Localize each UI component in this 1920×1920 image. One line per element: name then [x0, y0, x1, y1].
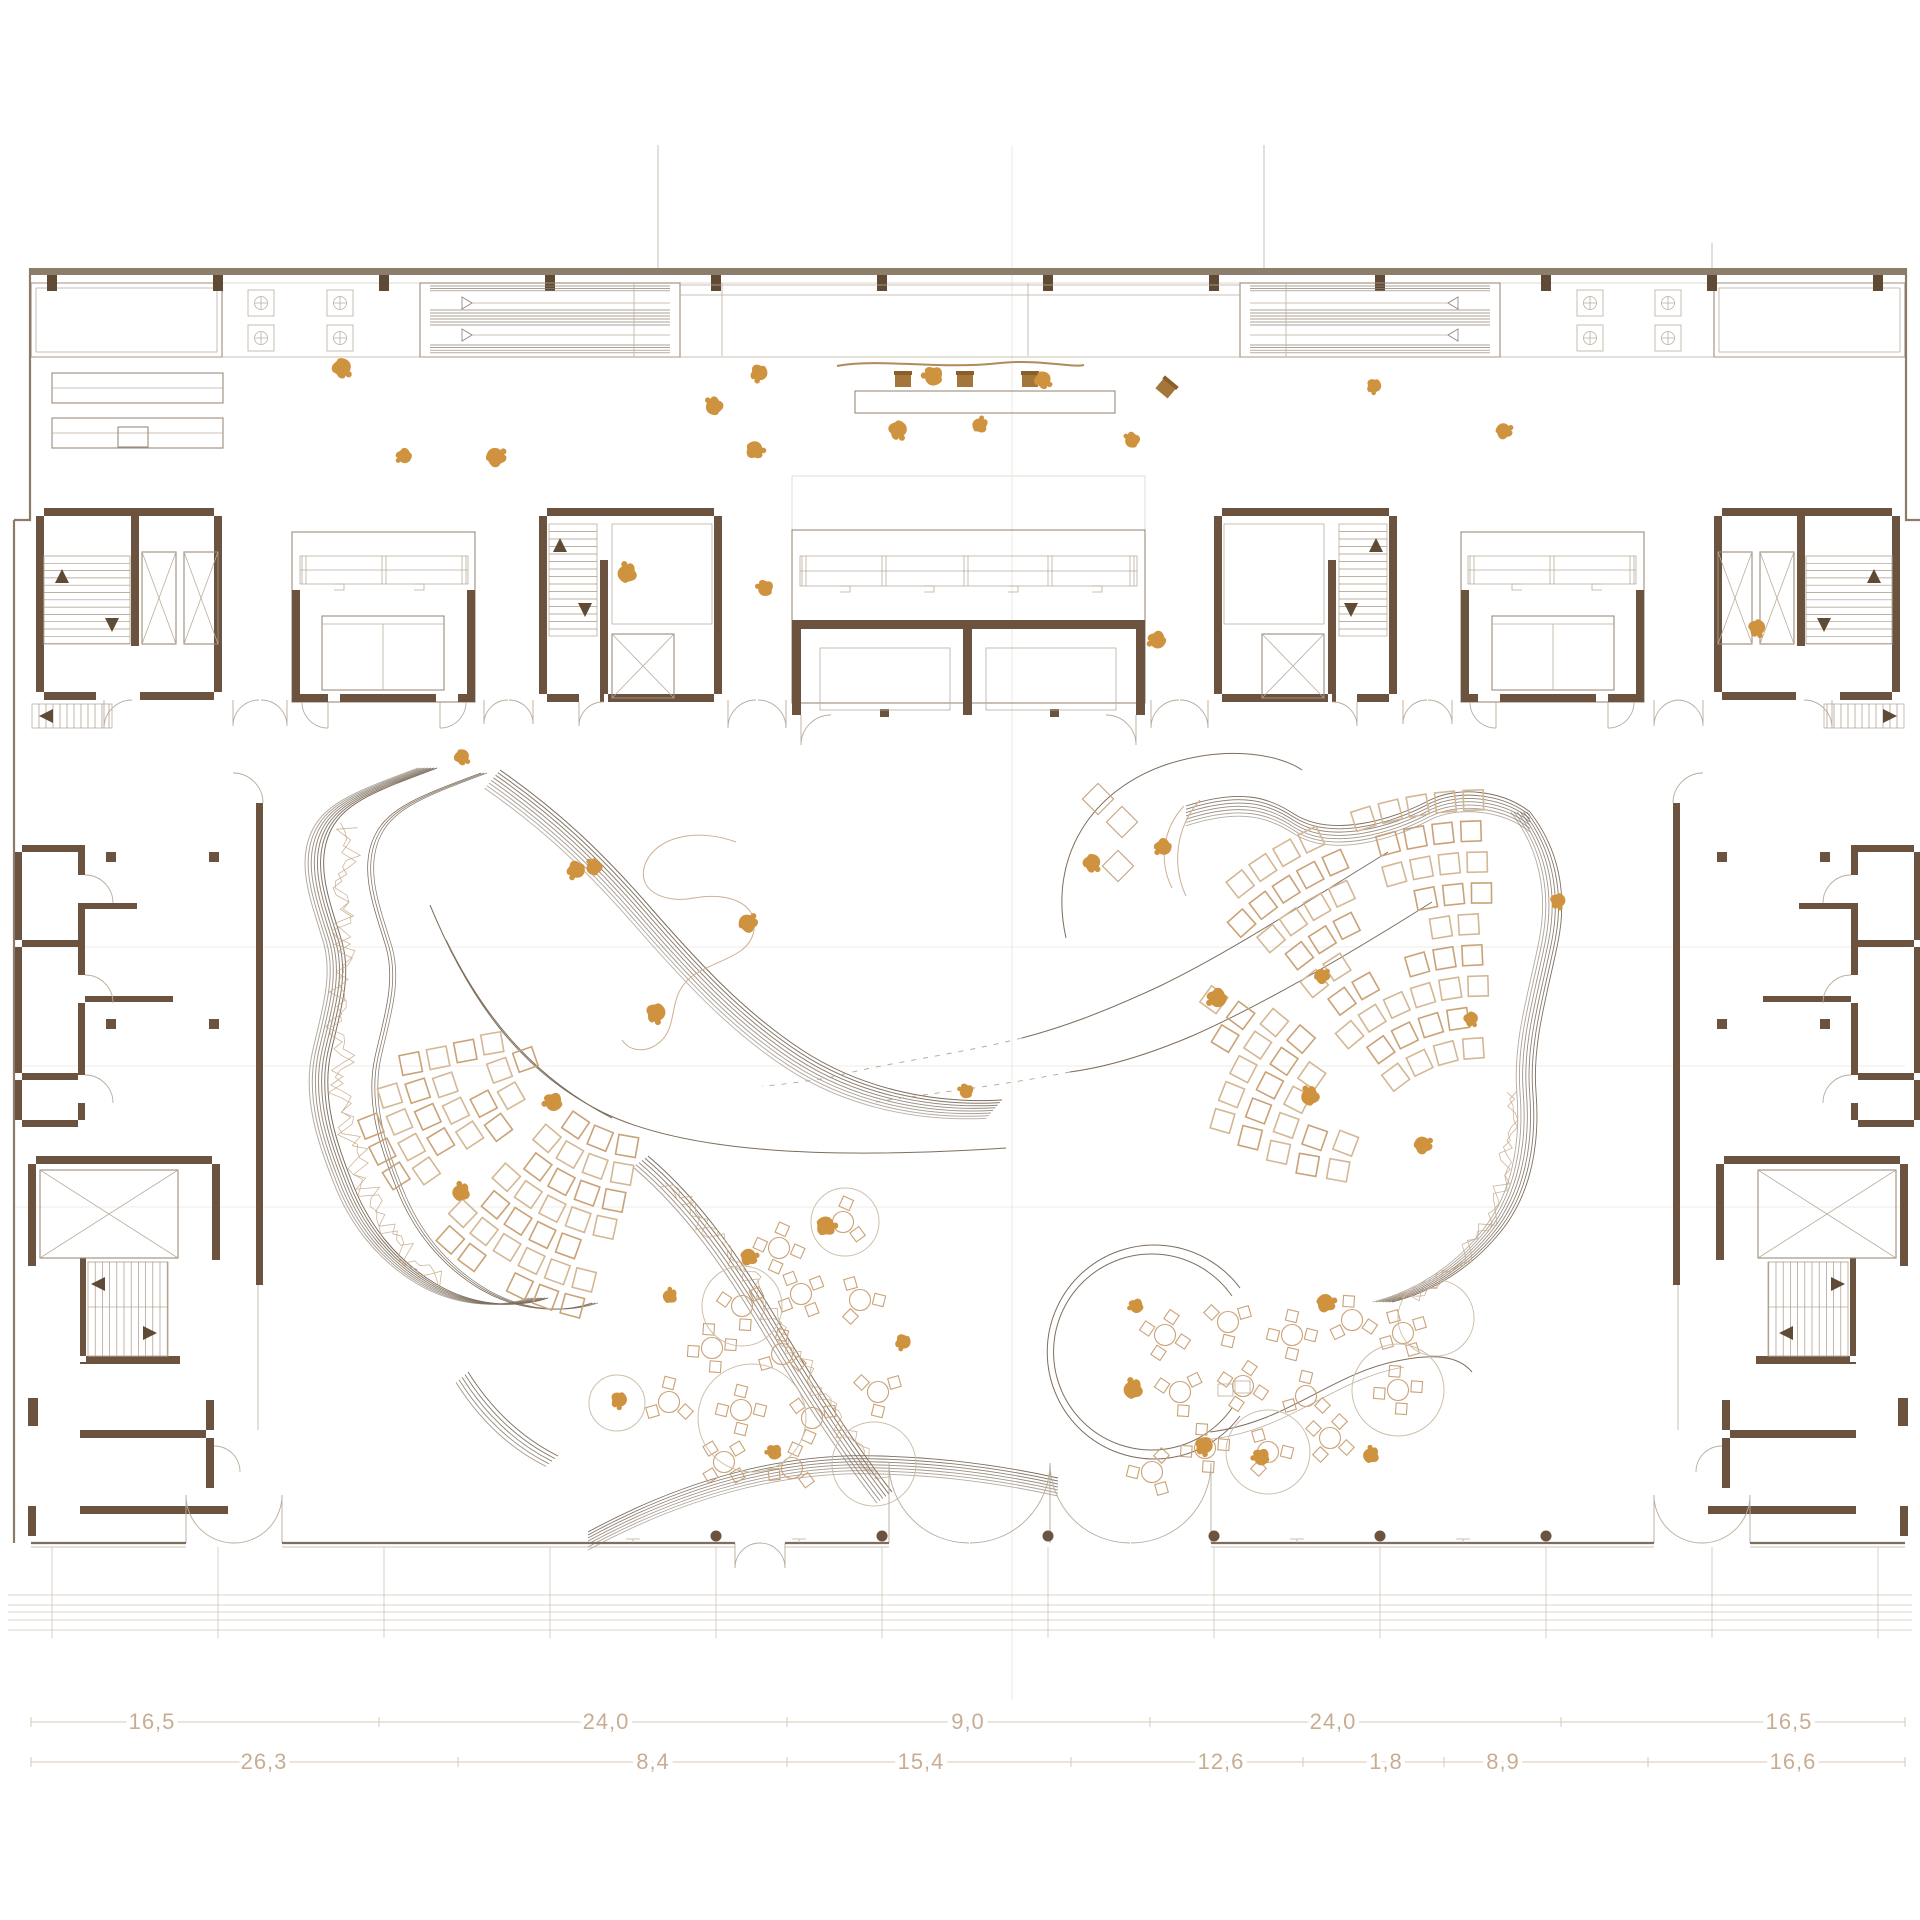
- auditorium-seat: [433, 1072, 458, 1097]
- auditorium-seating: [358, 790, 1492, 1318]
- facade-column: [1209, 1531, 1220, 1542]
- auditorium-seat: [582, 1153, 608, 1179]
- auditorium-seat: [1270, 1047, 1298, 1075]
- auditorium-seat: [545, 1259, 571, 1285]
- auditorium-seat: [456, 1121, 484, 1149]
- top-center-strip: [31, 283, 1905, 357]
- auditorium-seat: [1352, 972, 1379, 999]
- auditorium-seat: [533, 1284, 559, 1310]
- auditorium-seat: [481, 1032, 504, 1055]
- auditorium-seat: [1328, 987, 1356, 1015]
- pond-outline: [622, 835, 754, 1050]
- person-figure: [1080, 851, 1105, 876]
- stair-direction-arrow: [105, 618, 119, 632]
- auditorium-seat: [1467, 852, 1487, 872]
- auditorium-seat: [470, 1217, 498, 1245]
- person-figure: [919, 363, 946, 389]
- auditorium-seat: [556, 1233, 582, 1259]
- person-figure: [971, 415, 989, 434]
- person-figure: [642, 999, 670, 1028]
- person-figure: [1122, 431, 1141, 449]
- west-wing: [14, 268, 263, 1543]
- person-figure: [1151, 835, 1175, 859]
- auditorium-seat: [529, 1222, 556, 1249]
- auditorium-seat: [1327, 1159, 1350, 1182]
- auditorium-seat: [1405, 952, 1430, 977]
- auditorium-seat: [593, 1215, 617, 1239]
- person-figure: [749, 363, 769, 384]
- person-figure: [762, 1441, 784, 1462]
- person-figure: [483, 442, 511, 470]
- wall-pier: [1541, 275, 1551, 291]
- auditorium-seat: [1392, 1022, 1419, 1049]
- auditorium-seat: [548, 1168, 575, 1195]
- auditorium-seat: [1273, 839, 1300, 866]
- auditorium-seat: [524, 1153, 552, 1181]
- auditorium-seat: [1358, 1004, 1386, 1032]
- auditorium-seat: [556, 1141, 583, 1168]
- auditorium-seat: [539, 1195, 566, 1222]
- auditorium-seat: [498, 1082, 525, 1109]
- auditorium-seat: [1273, 1113, 1299, 1139]
- auditorium-seat: [369, 1138, 396, 1165]
- cafe-table: [1204, 1305, 1251, 1348]
- auditorium-seat: [1279, 908, 1307, 936]
- stair-direction-arrow: [578, 603, 592, 617]
- wall-pier: [1043, 275, 1053, 291]
- auditorium-seat: [399, 1052, 423, 1076]
- facade-column: [877, 1531, 888, 1542]
- cafe-table: [687, 1323, 736, 1372]
- reception-counters: [52, 362, 1179, 448]
- tree-canopy-circle: [1352, 1344, 1444, 1436]
- facade-column: [711, 1531, 722, 1542]
- wall-pier: [877, 275, 887, 291]
- person-figure: [660, 1285, 680, 1306]
- auditorium-seat: [1410, 856, 1433, 879]
- wall-pier: [379, 275, 389, 291]
- auditorium-seat: [436, 1226, 464, 1254]
- stair-direction-arrow: [55, 569, 69, 583]
- auditorium-seat: [481, 1191, 509, 1219]
- stage-diamond: [1106, 806, 1137, 837]
- person-figure: [452, 748, 472, 767]
- auditorium-seat: [616, 1134, 639, 1157]
- person-figure: [1202, 984, 1230, 1013]
- meeting-room: [292, 532, 475, 728]
- sink-fixture: [118, 427, 148, 447]
- auditorium-seat: [514, 1181, 542, 1209]
- auditorium-seat: [1256, 1072, 1283, 1099]
- person-figure: [608, 1389, 630, 1412]
- auditorium-seat: [427, 1128, 454, 1155]
- cafe-table: [646, 1376, 693, 1419]
- auditorium-seat: [1246, 1098, 1272, 1124]
- cafe-table: [715, 1384, 766, 1435]
- person-figure: [1248, 1445, 1273, 1469]
- facade-column: [1541, 1531, 1552, 1542]
- person-figure: [701, 394, 726, 418]
- auditorium-seat: [1296, 1153, 1319, 1176]
- auditorium-seat: [1272, 875, 1300, 903]
- auditorium-seat: [1219, 1082, 1245, 1108]
- person-figure: [1143, 627, 1169, 654]
- auditorium-seat: [1468, 976, 1489, 997]
- person-figure: [1461, 1009, 1483, 1030]
- stair-direction-arrow: [91, 1277, 105, 1291]
- auditorium-seat: [1434, 1041, 1458, 1065]
- auditorium-seat: [458, 1244, 486, 1272]
- auditorium-seat: [1267, 1140, 1291, 1164]
- dimension-label: 24,0: [583, 1709, 630, 1734]
- cafe-table: [753, 1222, 805, 1274]
- auditorium-seat: [1433, 947, 1456, 970]
- auditorium-seat: [574, 1180, 600, 1206]
- auditorium-seat: [1333, 912, 1360, 939]
- auditorium-seat: [1439, 977, 1462, 1000]
- dimension-label: 16,5: [1766, 1709, 1813, 1734]
- auditorium-seat: [1227, 909, 1255, 937]
- auditorium-seat: [1429, 916, 1452, 939]
- person-figure: [957, 1083, 974, 1099]
- auditorium-seat: [382, 1162, 410, 1190]
- auditorium-seat: [1302, 1125, 1327, 1150]
- auditorium-seat: [1249, 891, 1277, 919]
- auditorium-seat: [412, 1157, 440, 1185]
- auditorium-seat: [1309, 926, 1337, 954]
- tree-canopy-circle: [1398, 1280, 1474, 1356]
- stage-diamond: [1082, 783, 1113, 814]
- cafe-table: [1218, 1361, 1269, 1412]
- east-wing: [1673, 268, 1920, 1543]
- cafe-table: [1126, 1448, 1169, 1495]
- auditorium-seat: [611, 1162, 634, 1185]
- wall-squiggle: [837, 362, 1084, 366]
- floor-plan-canvas: 16,524,09,024,016,526,38,415,412,61,88,9…: [0, 0, 1920, 1920]
- corner-room: [31, 283, 222, 357]
- c-shaped-bench: [1047, 1245, 1472, 1459]
- auditorium-seat: [1384, 992, 1410, 1018]
- auditorium-seat: [1382, 862, 1407, 887]
- desk-chair: [1155, 375, 1179, 399]
- auditorium-seat: [1462, 945, 1483, 966]
- auditorium-seat: [1411, 983, 1436, 1008]
- person-figure: [1364, 377, 1383, 397]
- desk-chair: [956, 371, 974, 387]
- auditorium-seat: [1333, 1130, 1359, 1156]
- auditorium-seat: [1230, 1056, 1257, 1083]
- auditorium-seat: [1336, 1021, 1364, 1049]
- cafe-table: [1330, 1295, 1377, 1339]
- info-desk: [855, 391, 1115, 413]
- person-figure: [1125, 1295, 1147, 1317]
- auditorium-seat: [518, 1248, 545, 1275]
- auditorium-seat: [562, 1111, 590, 1139]
- auditorium-seat: [1432, 822, 1454, 844]
- facade-column: [1043, 1531, 1054, 1542]
- landscape-scribbles: [326, 823, 1518, 1484]
- auditorium-seat: [1244, 1031, 1272, 1059]
- auditorium-seat: [386, 1109, 412, 1135]
- stair-direction-arrow: [553, 538, 567, 552]
- auditorium-seat: [1404, 826, 1427, 849]
- dimension-label: 9,0: [951, 1709, 985, 1734]
- person-figure: [1118, 1374, 1147, 1403]
- auditorium-seat: [1414, 887, 1437, 910]
- auditorium-seat: [487, 1058, 513, 1084]
- auditorium-seat: [507, 1273, 534, 1300]
- person-figure: [612, 558, 641, 587]
- person-figure: [1493, 419, 1517, 443]
- auditorium-seat: [1287, 1025, 1315, 1053]
- auditorium-seat: [1438, 853, 1460, 875]
- facade-column: [1375, 1531, 1386, 1542]
- auditorium-seat: [1303, 893, 1330, 920]
- auditorium-seat: [1297, 861, 1324, 888]
- cafe-table: [1140, 1310, 1191, 1361]
- cafe-table: [854, 1375, 901, 1418]
- person-figure: [813, 1212, 841, 1239]
- landscape-ridge-bands: [305, 768, 1562, 1550]
- auditorium-seat: [405, 1078, 430, 1103]
- dimension-label: 8,9: [1486, 1749, 1520, 1774]
- auditorium-seat: [1382, 1063, 1410, 1091]
- double-doors: [186, 700, 1750, 1568]
- auditorium-seat: [358, 1113, 384, 1139]
- auditorium-seat: [492, 1163, 520, 1191]
- dimension-label: 12,6: [1198, 1749, 1245, 1774]
- upper-cores-right: [1214, 283, 1905, 728]
- auditorium-seat: [504, 1207, 532, 1235]
- dimension-label: 1,8: [1369, 1749, 1403, 1774]
- dimension-label: 16,5: [129, 1709, 176, 1734]
- auditorium-seat: [1406, 1049, 1433, 1076]
- auditorium-seat: [587, 1125, 613, 1151]
- auditorium-seat: [443, 1097, 470, 1124]
- person-figure: [329, 356, 356, 382]
- auditorium-seat: [493, 1234, 521, 1262]
- auditorium-seat: [1458, 914, 1479, 935]
- auditorium-seat: [1285, 942, 1313, 970]
- stair-direction-arrow: [143, 1326, 157, 1340]
- person-figure: [566, 860, 586, 881]
- person-figure: [1411, 1131, 1437, 1157]
- auditorium-seat: [398, 1134, 425, 1161]
- person-figure: [894, 1334, 911, 1352]
- person-figure: [1359, 1442, 1382, 1466]
- wall-pier: [1707, 275, 1717, 291]
- wall-pier: [1873, 275, 1883, 291]
- person-figure: [1313, 1289, 1341, 1317]
- auditorium-seat: [1461, 821, 1482, 842]
- dimension-label: 26,3: [241, 1749, 288, 1774]
- auditorium-seat: [572, 1268, 596, 1292]
- desk-chair: [894, 371, 912, 387]
- auditorium-seat: [1227, 1001, 1255, 1029]
- auditorium-seat: [470, 1090, 497, 1117]
- tree-canopy-circle: [698, 1364, 806, 1472]
- person-figure: [737, 910, 761, 935]
- south-facade: [8, 1531, 1912, 1639]
- person-figure: [743, 438, 768, 462]
- person-figure: [737, 1244, 762, 1269]
- cafe-table: [703, 1441, 745, 1483]
- wall-pier: [1209, 275, 1219, 291]
- person-figure: [538, 1089, 566, 1116]
- auditorium-seat: [1210, 1109, 1235, 1134]
- auditorium-seat: [1257, 925, 1285, 953]
- person-figure: [754, 578, 774, 597]
- dimension-label: 24,0: [1310, 1709, 1357, 1734]
- auditorium-seat: [1329, 880, 1356, 907]
- auditorium-seat: [565, 1207, 591, 1233]
- central-hall: [792, 476, 1145, 745]
- dimension-strings: 16,524,09,024,016,526,38,415,412,61,88,9…: [31, 1709, 1905, 1774]
- dimension-label: 15,4: [898, 1749, 945, 1774]
- auditorium-seat: [1471, 883, 1491, 903]
- wall-pier: [47, 275, 57, 291]
- cafe-table: [1155, 1372, 1202, 1416]
- stage-diamond: [1102, 850, 1133, 881]
- cafe-table: [778, 1271, 823, 1316]
- auditorium-seat: [485, 1113, 513, 1141]
- auditorium-seat: [1226, 870, 1254, 898]
- auditorium-seat: [454, 1039, 477, 1062]
- auditorium-seat: [513, 1047, 538, 1072]
- wall-pier: [213, 275, 223, 291]
- person-figure: [1745, 616, 1770, 641]
- wall-pier: [711, 275, 721, 291]
- auditorium-seat: [1249, 854, 1277, 882]
- auditorium-seat: [1418, 1013, 1443, 1038]
- cafe-table: [1266, 1309, 1317, 1360]
- upper-cores-left: [31, 283, 722, 728]
- dimension-label: 16,6: [1770, 1749, 1817, 1774]
- floor-plan-svg: 16,524,09,024,016,526,38,415,412,61,88,9…: [0, 0, 1920, 1920]
- auditorium-seat: [602, 1189, 625, 1212]
- auditorium-seat: [1443, 884, 1465, 906]
- auditorium-seat: [1211, 1025, 1238, 1052]
- top-wall-band: [31, 268, 1905, 357]
- auditorium-seat: [377, 1083, 402, 1108]
- person-figure: [885, 417, 913, 445]
- auditorium-seat: [1322, 849, 1348, 875]
- cafe-table: [1306, 1414, 1354, 1462]
- auditorium-seat: [1238, 1126, 1262, 1150]
- cafe-table: [843, 1277, 886, 1324]
- person-figure: [393, 445, 415, 467]
- auditorium-seat: [415, 1104, 441, 1130]
- dimension-label: 8,4: [636, 1749, 670, 1774]
- auditorium-seat: [1463, 1038, 1484, 1059]
- auditorium-seat: [1367, 1036, 1395, 1064]
- auditorium-seat: [449, 1199, 477, 1227]
- auditorium-seat: [1260, 1009, 1288, 1037]
- auditorium-seat: [533, 1124, 561, 1152]
